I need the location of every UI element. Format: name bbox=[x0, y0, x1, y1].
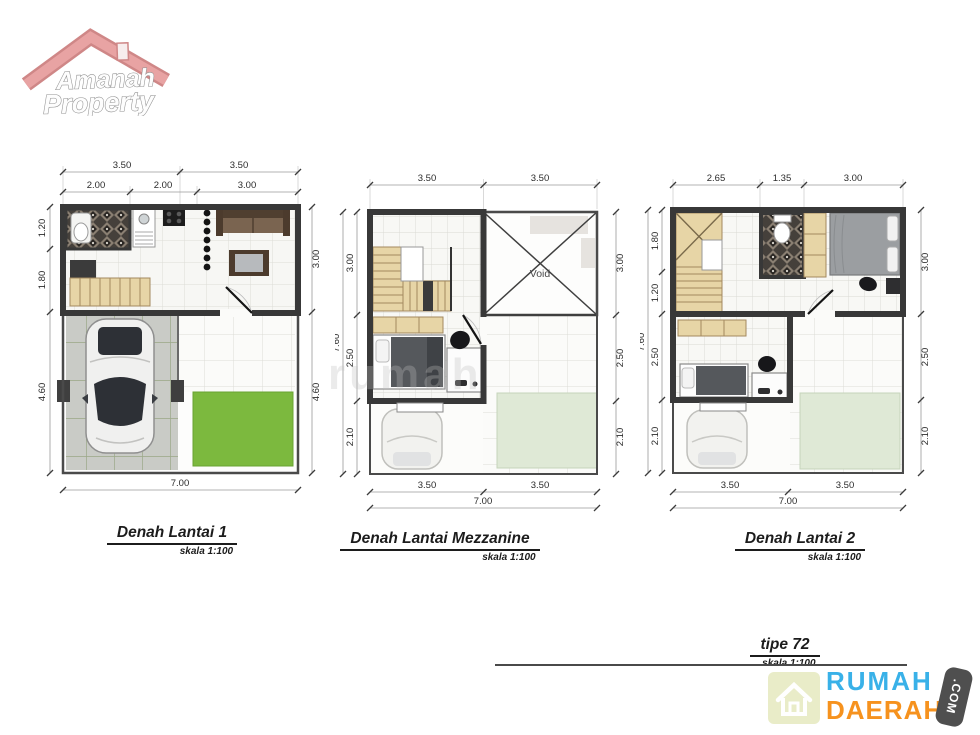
svg-text:2.10: 2.10 bbox=[615, 428, 626, 447]
plan2-void: Void bbox=[484, 212, 598, 315]
svg-text:3.50: 3.50 bbox=[418, 173, 437, 184]
svg-text:3.50: 3.50 bbox=[836, 480, 855, 491]
plan1-title: Denah Lantai 1 bbox=[107, 524, 237, 545]
chimney-icon bbox=[117, 43, 129, 60]
plan3-bathroom bbox=[761, 213, 804, 277]
svg-text:2.10: 2.10 bbox=[345, 428, 356, 447]
plan3-desk bbox=[752, 373, 787, 399]
svg-text:7.00: 7.00 bbox=[474, 496, 493, 507]
svg-text:3.00: 3.00 bbox=[844, 173, 863, 184]
svg-text:4.60: 4.60 bbox=[311, 383, 322, 402]
plan3-drawing: 2.65 1.35 3.00 7.60 1.80 1.20 2.50 2.10 … bbox=[640, 152, 950, 524]
plan3-double-bed bbox=[830, 213, 900, 275]
house-icon bbox=[768, 672, 820, 724]
plan2-title: Denah Lantai Mezzanine bbox=[340, 530, 539, 551]
svg-text:2.50: 2.50 bbox=[345, 349, 356, 368]
svg-text:3.50: 3.50 bbox=[721, 480, 740, 491]
type-label: tipe 72 bbox=[750, 636, 819, 657]
logo-word-2: Property bbox=[42, 86, 156, 116]
plan2-bed bbox=[373, 335, 445, 389]
plan2-scale: skala 1:100 bbox=[340, 552, 539, 563]
rumahdaerah-logo: RUMAH DAERAH .COM bbox=[762, 666, 972, 734]
svg-text:Void: Void bbox=[530, 268, 551, 280]
svg-text:2.10: 2.10 bbox=[920, 427, 931, 446]
plan1-patio bbox=[178, 315, 295, 392]
brand-word-daerah: DAERAH bbox=[826, 695, 943, 726]
plan1-title-block: Denah Lantai 1 skala 1:100 bbox=[72, 524, 272, 559]
plan2-ledge bbox=[397, 403, 443, 412]
svg-text:7.00: 7.00 bbox=[779, 496, 798, 507]
svg-text:7.60: 7.60 bbox=[335, 334, 342, 353]
svg-text:3.50: 3.50 bbox=[418, 480, 437, 491]
plan3-dresser bbox=[678, 320, 746, 336]
svg-text:3.00: 3.00 bbox=[920, 253, 931, 272]
plan3-title: Denah Lantai 2 bbox=[735, 530, 865, 551]
svg-text:1.20: 1.20 bbox=[37, 219, 48, 238]
svg-text:3.50: 3.50 bbox=[531, 480, 550, 491]
plan3-scale: skala 1:100 bbox=[735, 552, 865, 563]
svg-text:3.00: 3.00 bbox=[615, 254, 626, 273]
svg-text:3.00: 3.00 bbox=[345, 254, 356, 273]
plan2-desk bbox=[447, 348, 482, 392]
plan2-ghost-car bbox=[382, 409, 442, 469]
plan1-gate-post-right bbox=[171, 380, 184, 402]
plan2-drawing: Void 3.50 3.50 7.60 3.00 2.50 2.10 bbox=[335, 152, 635, 524]
svg-text:3.50: 3.50 bbox=[531, 173, 550, 184]
plan2-title-block: Denah Lantai Mezzanine skala 1:100 bbox=[340, 530, 540, 565]
brand-tld-tag: .COM bbox=[934, 666, 974, 729]
brand-tld: .COM bbox=[943, 678, 965, 716]
svg-text:1.80: 1.80 bbox=[650, 232, 661, 251]
plan3-wardrobe bbox=[804, 213, 826, 277]
svg-text:2.10: 2.10 bbox=[650, 427, 661, 446]
plan3-ghost-car bbox=[687, 410, 747, 468]
svg-text:3.00: 3.00 bbox=[238, 180, 257, 191]
brand-word-rumah: RUMAH bbox=[826, 666, 933, 697]
svg-text:1.80: 1.80 bbox=[37, 271, 48, 290]
plan3-title-block: Denah Lantai 2 skala 1:100 bbox=[700, 530, 900, 565]
plan3-chair bbox=[758, 356, 776, 372]
plan3-stairs bbox=[676, 213, 722, 312]
plan3-pale-grass bbox=[800, 393, 900, 469]
svg-text:2.50: 2.50 bbox=[615, 349, 626, 368]
plan1-coffee-table bbox=[229, 250, 269, 276]
svg-text:7.60: 7.60 bbox=[640, 333, 647, 352]
svg-text:7.00: 7.00 bbox=[171, 478, 190, 489]
plan1-door-gap bbox=[220, 309, 252, 317]
svg-text:2.65: 2.65 bbox=[707, 173, 726, 184]
svg-text:2.00: 2.00 bbox=[154, 180, 173, 191]
svg-text:3.50: 3.50 bbox=[230, 160, 249, 171]
floorplan-sheet: Amanah Property bbox=[0, 0, 980, 735]
plan1-stove bbox=[163, 209, 185, 226]
house-icon-tile bbox=[768, 672, 820, 724]
toilet-icon bbox=[74, 223, 88, 241]
plan3-ledge bbox=[700, 403, 746, 411]
svg-text:1.20: 1.20 bbox=[650, 284, 661, 303]
plan1-grass bbox=[193, 392, 293, 466]
plan2-pale-grass bbox=[497, 393, 597, 468]
plan2-headboard-cabinet bbox=[373, 317, 443, 333]
plan3-bedroom-desk bbox=[886, 278, 900, 294]
svg-text:3.50: 3.50 bbox=[113, 160, 132, 171]
svg-text:2.50: 2.50 bbox=[920, 348, 931, 367]
plan1-car bbox=[82, 319, 158, 453]
svg-text:2.00: 2.00 bbox=[87, 180, 106, 191]
svg-text:1.35: 1.35 bbox=[773, 173, 792, 184]
toilet-icon bbox=[774, 223, 790, 243]
plan1-scale: skala 1:100 bbox=[107, 546, 237, 557]
plan1-drawing: 3.50 3.50 2.00 2.00 3.00 1.20 1.80 4.60 … bbox=[30, 152, 330, 510]
plan1-bathroom bbox=[66, 209, 130, 249]
plan1-kitchen-sink bbox=[133, 209, 155, 247]
plan3-single-bed bbox=[680, 364, 748, 397]
plan1-sofa bbox=[216, 209, 290, 236]
svg-text:3.00: 3.00 bbox=[311, 250, 322, 269]
svg-text:4.60: 4.60 bbox=[37, 383, 48, 402]
amanah-property-logo: Amanah Property bbox=[14, 20, 182, 116]
svg-text:2.50: 2.50 bbox=[650, 348, 661, 367]
